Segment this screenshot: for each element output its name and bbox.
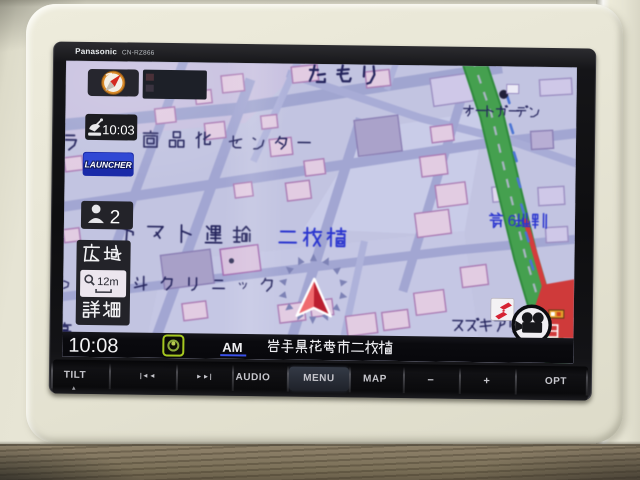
svg-text:AM: AM	[222, 340, 242, 355]
svg-text:LAUNCHER: LAUNCHER	[85, 159, 132, 170]
svg-text:10:08: 10:08	[68, 335, 118, 358]
svg-text:2: 2	[110, 207, 121, 228]
svg-text:10:03: 10:03	[102, 122, 135, 137]
svg-text:12m: 12m	[97, 276, 119, 288]
